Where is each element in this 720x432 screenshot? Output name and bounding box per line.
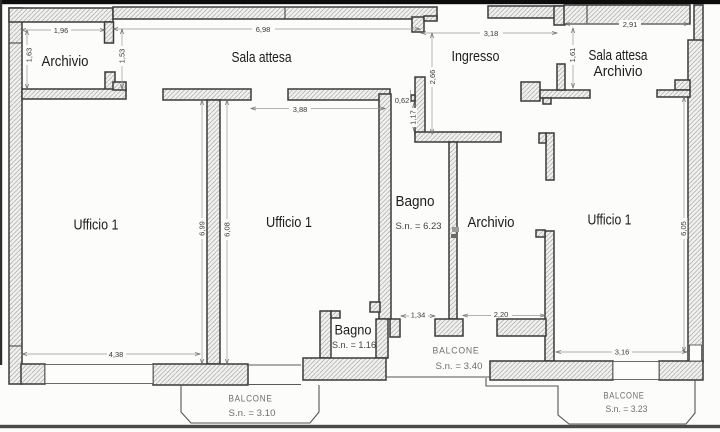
- svg-text:S.n. = 6.23: S.n. = 6.23: [396, 221, 442, 232]
- svg-text:Bagno: Bagno: [396, 193, 435, 210]
- svg-text:3,88: 3,88: [293, 105, 308, 114]
- svg-text:4,38: 4,38: [109, 350, 124, 359]
- svg-text:1,61: 1,61: [568, 48, 577, 63]
- svg-text:BALCONE: BALCONE: [604, 391, 645, 401]
- svg-text:0,62: 0,62: [395, 96, 410, 105]
- svg-text:1,63: 1,63: [24, 48, 33, 63]
- svg-text:Ufficio 1: Ufficio 1: [266, 214, 312, 231]
- svg-text:6,98: 6,98: [256, 25, 271, 34]
- svg-text:2,91: 2,91: [623, 20, 638, 29]
- svg-text:6,05: 6,05: [679, 221, 688, 236]
- svg-text:S.n. = 3.23: S.n. = 3.23: [606, 404, 648, 414]
- svg-text:Sala attesa: Sala attesa: [232, 49, 293, 66]
- svg-text:2,20: 2,20: [494, 310, 509, 319]
- svg-text:6,08: 6,08: [222, 222, 231, 237]
- svg-text:3,18: 3,18: [484, 29, 499, 38]
- svg-text:1,53: 1,53: [117, 49, 126, 64]
- svg-text:S.n. = 1.16: S.n. = 1.16: [332, 340, 376, 351]
- svg-text:2,66: 2,66: [428, 70, 437, 85]
- svg-text:3,16: 3,16: [615, 348, 630, 357]
- svg-text:Archivio: Archivio: [42, 53, 89, 70]
- svg-text:Ingresso: Ingresso: [452, 48, 500, 65]
- svg-text:Archivio: Archivio: [468, 214, 515, 231]
- svg-text:S.n. = 3.10: S.n. = 3.10: [229, 408, 276, 418]
- svg-text:BALCONE: BALCONE: [229, 394, 273, 404]
- svg-text:S.n. = 3.40: S.n. = 3.40: [436, 361, 483, 371]
- svg-text:Bagno: Bagno: [335, 323, 372, 338]
- svg-text:Ufficio 1: Ufficio 1: [588, 212, 632, 229]
- svg-text:1,17: 1,17: [408, 110, 417, 125]
- svg-text:Archivio: Archivio: [594, 63, 643, 80]
- svg-text:6,99: 6,99: [197, 221, 206, 236]
- svg-text:Sala attesa: Sala attesa: [589, 47, 649, 64]
- svg-text:1,34: 1,34: [411, 311, 426, 320]
- svg-text:BALCONE: BALCONE: [433, 346, 480, 356]
- svg-text:1,96: 1,96: [54, 26, 69, 35]
- svg-text:Ufficio 1: Ufficio 1: [74, 217, 119, 234]
